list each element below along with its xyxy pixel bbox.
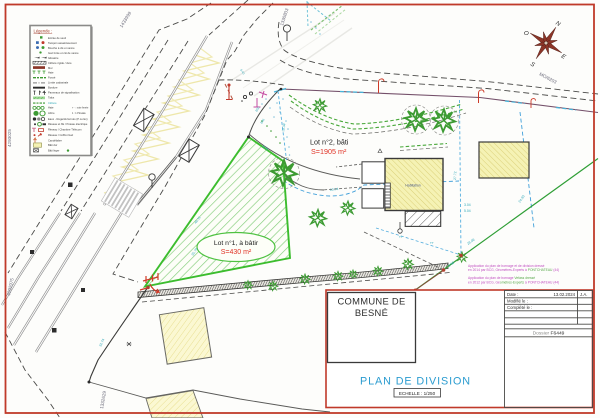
svg-text:Habitation: Habitation — [405, 184, 420, 188]
svg-text:S=1905 m²: S=1905 m² — [311, 147, 347, 156]
svg-text:Candélabre: Candélabre — [48, 138, 62, 142]
svg-text:TT: TT — [430, 241, 434, 245]
svg-text:Panneaux de signalisation: Panneaux de signalisation — [48, 91, 80, 95]
svg-text:Complété le :: Complété le : — [507, 305, 532, 310]
svg-text:Glissière: Glissière — [48, 56, 59, 60]
svg-text:Fossé: Fossé — [48, 76, 56, 80]
svg-text:27.72: 27.72 — [453, 171, 457, 180]
svg-text:S=430 m²: S=430 m² — [221, 249, 252, 256]
svg-text:PLAN DE DIVISION: PLAN DE DIVISION — [360, 376, 471, 388]
svg-text:Lot n°2, bâti: Lot n°2, bâti — [310, 138, 349, 147]
svg-text:J.A.: J.A. — [580, 292, 587, 297]
svg-text:+ · ▫ voie ferrée: + · ▫ voie ferrée — [72, 107, 89, 110]
svg-text:Haie: Haie — [48, 71, 54, 75]
svg-text:Bâti léger: Bâti léger — [48, 149, 59, 153]
svg-text:Haie: Haie — [48, 106, 54, 110]
svg-text:Réseau / Chambre Télécom: Réseau / Chambre Télécom — [48, 128, 82, 132]
svg-text:Limite cadastrale: Limite cadastrale — [48, 81, 69, 85]
svg-text:Clôture rigide / dure: Clôture rigide / dure — [48, 61, 72, 65]
svg-text:Tampon assainissement: Tampon assainissement — [48, 41, 77, 45]
svg-text:Dossier F6449: Dossier F6449 — [533, 331, 565, 337]
svg-text:Entrée de seuil: Entrée de seuil — [48, 36, 66, 40]
svg-text:Bouche à clé et vanne: Bouche à clé et vanne — [48, 46, 75, 50]
svg-text:Réseau / Coffret Gaz: Réseau / Coffret Gaz — [48, 133, 74, 137]
svg-text:3.04: 3.04 — [464, 203, 471, 207]
svg-text:TT: TT — [399, 235, 403, 239]
svg-text:Arbre: Arbre — [48, 111, 55, 115]
svg-text:Lot n°1, à bâtir: Lot n°1, à bâtir — [214, 239, 259, 247]
svg-text:COMMUNE DE: COMMUNE DE — [337, 296, 405, 307]
svg-text:en 2014 par BCG, Géomètres-Exp: en 2014 par BCG, Géomètres-Experts à PON… — [468, 268, 559, 272]
svg-text:13.02.2024: 13.02.2024 — [553, 292, 575, 297]
svg-text:1 : 1 Pluviale: 1 : 1 Pluviale — [72, 113, 86, 115]
svg-text:Modifié le :: Modifié le : — [507, 299, 528, 304]
svg-text:BESNÉ: BESNÉ — [355, 307, 388, 318]
svg-text:en 2012 par BCG, Géomètres-Exp: en 2012 par BCG, Géomètres-Experts à PON… — [468, 280, 559, 284]
svg-text:Eaux - Regards fermés (P ou Ex: Eaux - Regards fermés (P ou Ex) — [48, 117, 88, 121]
svg-text:4293025: 4293025 — [7, 129, 12, 147]
svg-text:Gaz fonte et clé de vanne: Gaz fonte et clé de vanne — [48, 51, 79, 55]
svg-text:Mur: Mur — [48, 66, 53, 70]
svg-text:Talus: Talus — [48, 96, 55, 100]
svg-text:Clôture: Clôture — [48, 101, 57, 105]
svg-text:Réseau et fils / Poteau électr: Réseau et fils / Poteau électrique — [48, 122, 88, 126]
svg-text:5.04: 5.04 — [464, 209, 471, 213]
svg-text:Bordure: Bordure — [48, 86, 58, 90]
svg-text:Légende :: Légende : — [34, 29, 53, 34]
svg-text:Bâti dur: Bâti dur — [48, 143, 57, 147]
svg-text:Date :: Date : — [507, 292, 518, 297]
svg-text:ECHELLE : 1/250: ECHELLE : 1/250 — [399, 391, 436, 396]
